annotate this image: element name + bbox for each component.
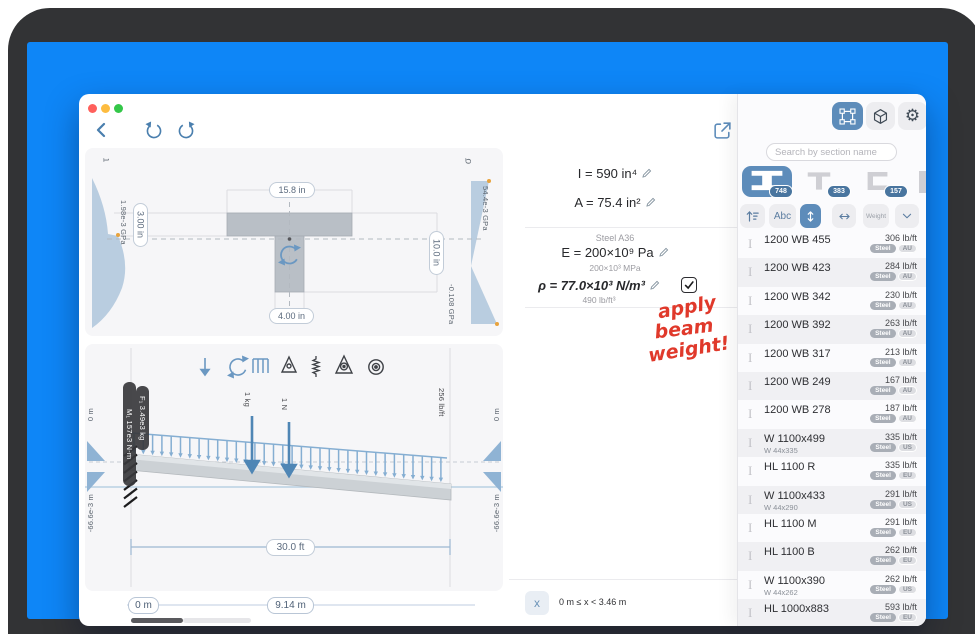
undo-icon [144, 121, 164, 141]
section-weight: 291 lb/ft [885, 489, 917, 499]
pencil-icon [641, 168, 652, 179]
material-badge: Steel [870, 414, 896, 423]
section-name: W 1100x499 [764, 433, 825, 445]
search-input[interactable] [766, 143, 897, 161]
section-row[interactable]: IW 1100x390W 44x262262 lb/ftSteelUS [738, 571, 926, 599]
material-name: Steel A36 [509, 233, 721, 243]
section-row[interactable]: I1200 WB 249167 lb/ftSteelAU [738, 372, 926, 400]
ruler-position-pill[interactable]: 9.14 m [267, 597, 314, 614]
region-badge: AU [898, 386, 917, 395]
section-name: HL 1100 B [764, 546, 815, 558]
settings-button[interactable]: ⚙ [898, 102, 926, 130]
section-row[interactable]: I1200 WB 317213 lb/ftSteelAU [738, 344, 926, 372]
section-row[interactable]: IW 1100x433W 44x290291 lb/ftSteelUS [738, 486, 926, 514]
point-load-tool-icon[interactable] [201, 358, 209, 375]
pencil-icon [658, 247, 669, 258]
ibeam-row-icon: I [748, 463, 752, 479]
section-weight: 335 lb/ft [885, 432, 917, 442]
section-name: 1200 WB 423 [764, 262, 831, 274]
section-weight: 593 lb/ft [885, 602, 917, 612]
material-badge: Steel [870, 443, 896, 452]
material-badge: Steel [870, 244, 896, 253]
area-value: A = 75.4 in² [574, 195, 640, 210]
distributed-load-tool-icon[interactable] [253, 359, 268, 373]
sort-by-height-button[interactable] [800, 204, 821, 228]
material-badge: Steel [870, 613, 896, 622]
section-name: 1200 WB 278 [764, 404, 831, 416]
deflection-zero-left: 0 m [86, 408, 95, 421]
back-button[interactable] [91, 120, 111, 140]
section-tags: SteelAU [870, 244, 917, 253]
edit-inertia-button[interactable] [641, 167, 652, 182]
web-width-dim[interactable]: 4.00 in [269, 308, 314, 324]
section-name: 1200 WB 342 [764, 291, 831, 303]
ibeam-row-icon: I [748, 406, 752, 422]
section-tags: SteelAU [870, 386, 917, 395]
properties-divider [525, 227, 737, 228]
ibeam-row-icon: I [748, 293, 752, 309]
section-weight: 167 lb/ft [885, 375, 917, 385]
pencil-icon [649, 280, 660, 291]
section-row[interactable]: IHL 1100 M291 lb/ftSteelEU [738, 514, 926, 542]
section-weight: 335 lb/ft [885, 460, 917, 470]
x-range-text: 0 m ≤ x < 3.46 m [559, 597, 626, 607]
region-badge: EU [898, 556, 917, 565]
deflection-min-right: -66.6e-3 m [492, 494, 501, 532]
pin-support-tool-icon[interactable] [282, 357, 296, 372]
section-name: 1200 WB 392 [764, 319, 831, 331]
cube-icon [872, 108, 889, 125]
region-badge: US [898, 500, 917, 509]
sort-button[interactable] [740, 204, 765, 228]
sort-by-name-button[interactable]: Abc [769, 204, 796, 228]
shear-max-value: 1.98e-3 GPa [119, 200, 128, 245]
section-row[interactable]: I1200 WB 392263 lb/ftSteelAU [738, 315, 926, 343]
ibeam-row-icon: I [748, 605, 752, 621]
section-row[interactable]: I1200 WB 278187 lb/ftSteelAU [738, 400, 926, 428]
minimize-window-button[interactable] [101, 104, 110, 113]
material-badge: Steel [870, 358, 896, 367]
hscrollbar-track[interactable] [183, 618, 251, 623]
density-value: ρ = 77.0×10³ N/m³ [538, 278, 645, 293]
t-beam-count-badge: 383 [827, 185, 851, 198]
section-row[interactable]: I1200 WB 455306 lb/ftSteelAU [738, 230, 926, 258]
share-export-icon [712, 120, 733, 141]
checkmark-icon [683, 279, 695, 291]
sigma-bottom-value: -0.108 GPa [447, 284, 456, 324]
modulus-row: E = 200×10⁹ Pa [509, 245, 721, 261]
section-weight: 262 lb/ft [885, 545, 917, 555]
section-tags: SteelUS [870, 585, 917, 594]
distributed-load-label: 256 lb/ft [437, 388, 446, 417]
section-row[interactable]: IHL 1100 R335 lb/ftSteelEU [738, 457, 926, 485]
deflection-min-left: -66.6e-3 m [86, 494, 95, 532]
horizontal-arrows-icon [837, 210, 852, 223]
region-badge: EU [898, 471, 917, 480]
ibeam-row-icon: I [748, 321, 752, 337]
chevron-left-icon [94, 122, 108, 138]
section-tags: SteelEU [870, 613, 917, 622]
edit-area-button[interactable] [645, 196, 656, 211]
section-name: 1200 WB 455 [764, 234, 831, 246]
deflection-zero-right: 0 m [492, 408, 501, 421]
inertia-value: I = 590 in⁴ [578, 166, 637, 181]
section-weight: 284 lb/ft [885, 261, 917, 271]
edit-density-button[interactable] [649, 279, 660, 294]
ibeam-row-icon: I [748, 236, 752, 252]
section-alt-name: W 44x262 [764, 588, 798, 597]
span-length-dim[interactable]: 30.0 ft [266, 539, 315, 556]
sigma-axis-label: σ [463, 158, 474, 164]
beam-toolbar [201, 356, 383, 379]
region-badge: AU [898, 272, 917, 281]
ruler-origin-pill[interactable]: 0 m [128, 597, 159, 614]
roller-support-tool-icon[interactable] [336, 356, 352, 373]
region-badge: US [898, 443, 917, 452]
section-row[interactable]: IHL 1000x883593 lb/ftSteelEU [738, 599, 926, 626]
section-tags: SteelAU [870, 329, 917, 338]
section-name: HL 1000x883 [764, 603, 829, 615]
section-alt-name: W 44x290 [764, 503, 798, 512]
density-row: ρ = 77.0×10³ N/m³ [493, 278, 705, 294]
section-height-dim[interactable]: 10.0 in [429, 231, 444, 275]
chevron-down-icon [900, 210, 914, 222]
sigma-top-value: 54.4e-3 GPa [481, 186, 490, 231]
hscrollbar-thumb[interactable] [131, 618, 183, 623]
material-badge: Steel [870, 528, 896, 537]
material-badge: Steel [870, 556, 896, 565]
undo-button[interactable] [143, 120, 165, 142]
ibeam-row-icon: I [748, 492, 752, 508]
region-badge: AU [898, 414, 917, 423]
ibeam-row-icon: I [748, 435, 752, 451]
ibeam-row-icon: I [748, 520, 752, 536]
ibeam-row-icon: I [748, 264, 752, 280]
edit-modulus-button[interactable] [658, 246, 669, 261]
sort-by-width-button[interactable] [832, 204, 856, 228]
close-window-button[interactable] [88, 104, 97, 113]
material-badge: Steel [870, 301, 896, 310]
section-name: W 1100x433 [764, 490, 825, 502]
moment-reaction-tag[interactable]: M₁ 157e3 N-m [123, 382, 136, 486]
modulus-alt-value: 200×10³ MPa [509, 263, 721, 273]
x-variable-button[interactable]: x [525, 591, 549, 615]
section-name: W 1100x390 [764, 575, 825, 587]
inertia-row: I = 590 in⁴ [509, 166, 721, 182]
section-tags: SteelUS [870, 500, 917, 509]
ibeam-row-icon: I [748, 548, 752, 564]
section-tags: SteelEU [870, 471, 917, 480]
flange-width-dim[interactable]: 15.8 in [269, 182, 315, 198]
vertical-arrows-icon [804, 209, 817, 224]
sort-by-weight-button[interactable]: Weight [863, 204, 889, 228]
material-badge: Steel [870, 585, 896, 594]
section-library-panel: ⚙ 748 383 157 [737, 94, 926, 626]
next-tab-partial-icon[interactable] [919, 171, 926, 193]
view-2d-button[interactable] [832, 102, 863, 130]
pencil-icon [645, 197, 656, 208]
desktop-background: τ σ 1.98e-3 GPa 54.4e-3 GPa -0.108 GPa 1… [27, 42, 948, 619]
section-weight: 230 lb/ft [885, 290, 917, 300]
section-tags: SteelEU [870, 528, 917, 537]
section-weight: 262 lb/ft [885, 574, 917, 584]
region-badge: AU [898, 301, 917, 310]
tau-axis-label: τ [101, 158, 112, 162]
spring-support-tool-icon[interactable] [313, 356, 319, 377]
ibeam-row-icon: I [748, 378, 752, 394]
section-weight: 263 lb/ft [885, 318, 917, 328]
section-tags: SteelAU [870, 414, 917, 423]
material-badge: Steel [870, 500, 896, 509]
beam-diagram-canvas[interactable]: M₁ 157e3 N-m F₁ 3.49e3 kg 1 kg 1 N 256 l… [85, 344, 503, 591]
region-badge: EU [898, 613, 917, 622]
region-badge: US [898, 585, 917, 594]
redo-button[interactable] [175, 120, 197, 142]
section-row[interactable]: I1200 WB 342230 lb/ftSteelAU [738, 287, 926, 315]
material-badge: Steel [870, 272, 896, 281]
section-name: 1200 WB 317 [764, 348, 831, 360]
section-name: HL 1100 M [764, 518, 817, 530]
section-row[interactable]: IW 1100x499W 44x335335 lb/ftSteelUS [738, 429, 926, 457]
export-button[interactable] [710, 118, 734, 142]
material-badge: Steel [870, 329, 896, 338]
gear-icon: ⚙ [905, 106, 920, 126]
fixed-support-tool-icon[interactable] [369, 360, 383, 374]
ibeam-row-icon: I [748, 350, 752, 366]
section-row[interactable]: IHL 1100 B262 lb/ftSteelEU [738, 542, 926, 570]
flange-thickness-dim[interactable]: 3.00 in [133, 203, 148, 247]
redo-icon [176, 121, 196, 141]
section-tags: SteelAU [870, 301, 917, 310]
section-list: I1200 WB 455306 lb/ftSteelAUI1200 WB 423… [738, 230, 926, 626]
device-bezel: τ σ 1.98e-3 GPa 54.4e-3 GPa -0.108 GPa 1… [8, 8, 975, 634]
section-alt-name: W 44x335 [764, 446, 798, 455]
point-load-1-label: 1 kg [243, 392, 252, 407]
section-tags: SteelAU [870, 272, 917, 281]
selection-frame-icon [839, 108, 856, 125]
force-reaction-tag[interactable]: F₁ 3.49e3 kg [136, 386, 149, 450]
region-badge: AU [898, 358, 917, 367]
view-3d-button[interactable] [866, 102, 895, 130]
section-row[interactable]: I1200 WB 423284 lb/ftSteelAU [738, 258, 926, 286]
moment-tool-icon[interactable] [227, 356, 249, 379]
point-load-2-label: 1 N [280, 398, 289, 410]
app-window: τ σ 1.98e-3 GPa 54.4e-3 GPa -0.108 GPa 1… [79, 94, 926, 626]
material-badge: Steel [870, 471, 896, 480]
section-name: HL 1100 R [764, 461, 815, 473]
cross-section-canvas[interactable]: τ σ 1.98e-3 GPa 54.4e-3 GPa -0.108 GPa 1… [85, 148, 503, 336]
region-badge: EU [898, 528, 917, 537]
section-weight: 306 lb/ft [885, 233, 917, 243]
section-weight: 291 lb/ft [885, 517, 917, 527]
more-filters-button[interactable] [895, 204, 919, 228]
section-tags: SteelEU [870, 556, 917, 565]
apply-weight-checkbox[interactable] [681, 277, 697, 293]
section-tags: SteelUS [870, 443, 917, 452]
c-channel-count-badge: 157 [884, 185, 908, 198]
sort-ascending-icon [745, 209, 760, 224]
section-name: 1200 WB 249 [764, 376, 831, 388]
area-row: A = 75.4 in² [509, 195, 721, 211]
region-badge: AU [898, 244, 917, 253]
section-weight: 187 lb/ft [885, 403, 917, 413]
bottom-bar-divider [509, 579, 737, 580]
ibeam-row-icon: I [748, 577, 752, 593]
screenshot-stage: τ σ 1.98e-3 GPa 54.4e-3 GPa -0.108 GPa 1… [0, 0, 975, 634]
material-badge: Steel [870, 386, 896, 395]
i-beam-count-badge: 748 [769, 185, 793, 198]
modulus-value: E = 200×10⁹ Pa [561, 245, 653, 260]
section-weight: 213 lb/ft [885, 347, 917, 357]
section-tags: SteelAU [870, 358, 917, 367]
region-badge: AU [898, 329, 917, 338]
zoom-window-button[interactable] [114, 104, 123, 113]
